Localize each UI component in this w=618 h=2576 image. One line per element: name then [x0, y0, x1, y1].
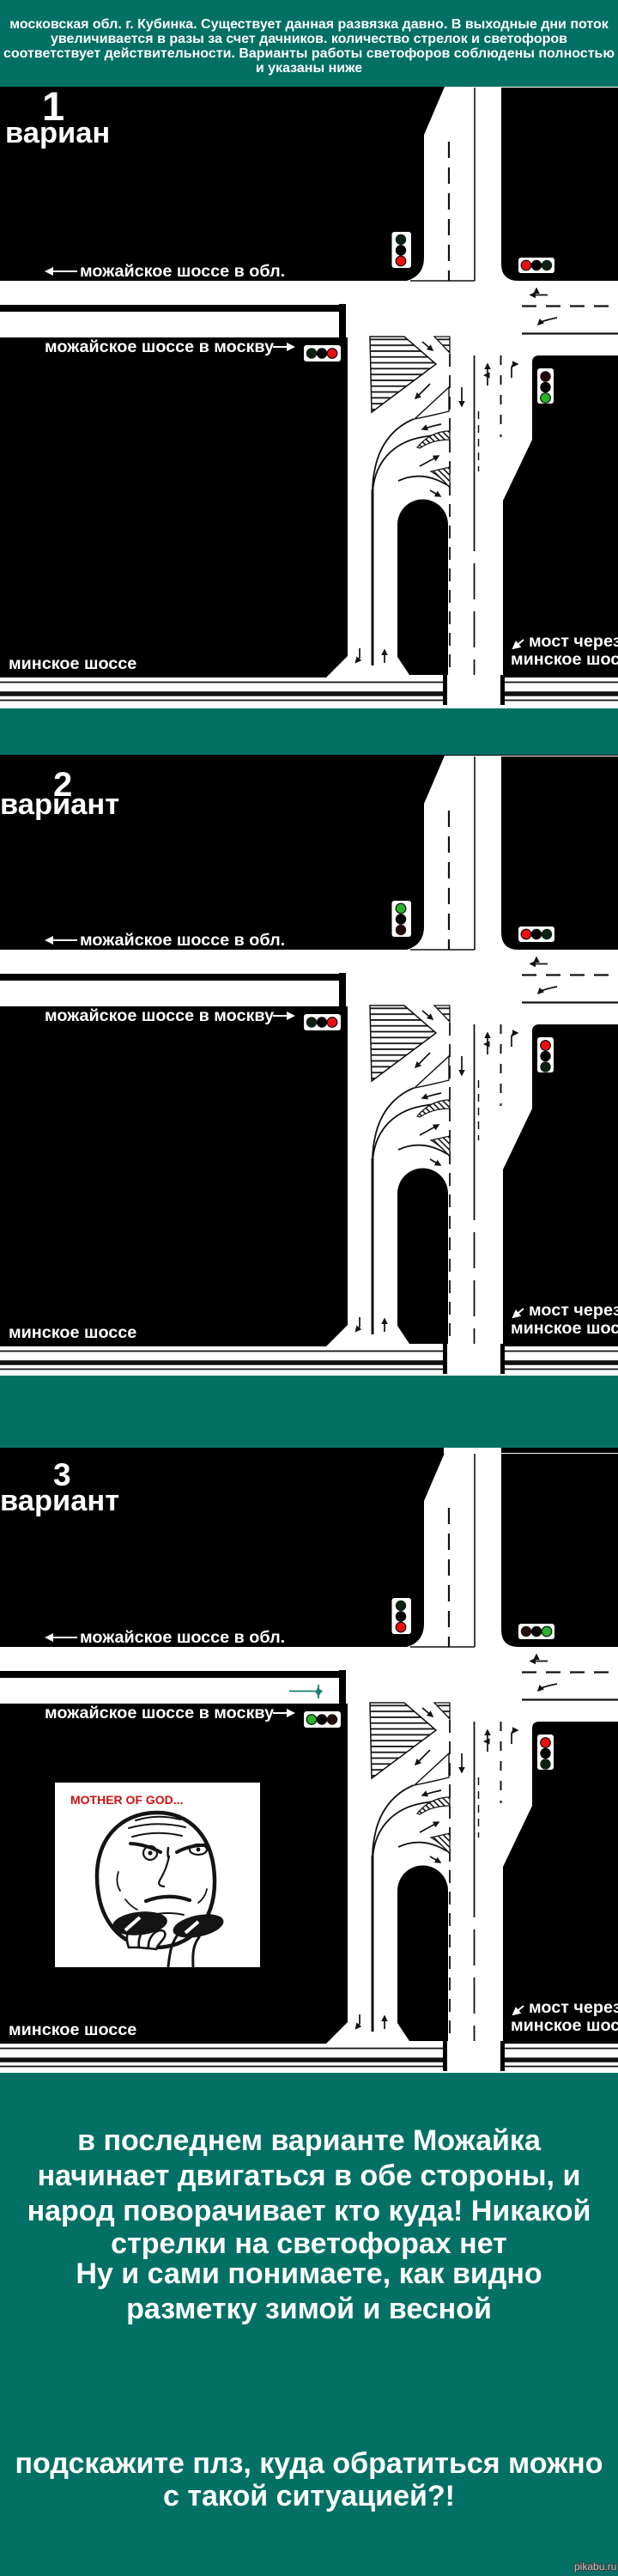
svg-text:соответствует действительности: соответствует действительности. Варианты…	[3, 46, 615, 61]
svg-text:с такой ситуацией?!: с такой ситуацией?!	[163, 2480, 455, 2512]
svg-text:московская обл. г. Кубинка. Су: московская обл. г. Кубинка. Существует д…	[9, 17, 609, 32]
svg-text:вариан: вариан	[5, 117, 110, 149]
svg-text:Ну и сами понимаете, как видно: Ну и сами понимаете, как видно	[76, 2257, 542, 2290]
svg-text:народ поворачивает кто куда! Н: народ поворачивает кто куда! Никакой	[27, 2195, 591, 2227]
svg-text:pikabu.ru: pikabu.ru	[574, 2561, 616, 2573]
svg-text:вариант: вариант	[0, 1485, 119, 1517]
svg-text:разметку зимой и весной: разметку зимой и весной	[126, 2293, 492, 2325]
svg-text:и указаны ниже: и указаны ниже	[256, 61, 362, 76]
svg-text:вариант: вариант	[0, 788, 119, 821]
svg-text:MOTHER OF GOD...: MOTHER OF GOD...	[70, 1793, 183, 1807]
svg-text:стрелки на светофорах нет: стрелки на светофорах нет	[111, 2227, 507, 2260]
svg-text:в последнем варианте Можайка: в последнем варианте Можайка	[77, 2124, 542, 2157]
svg-text:подскажите плз, куда обратитьс: подскажите плз, куда обратиться можно	[15, 2447, 603, 2480]
svg-text:начинает двигаться в обе сторо: начинает двигаться в обе стороны, и	[38, 2160, 581, 2192]
svg-text:увеличивается в разы за счет д: увеличивается в разы за счет дачников. к…	[51, 32, 567, 46]
